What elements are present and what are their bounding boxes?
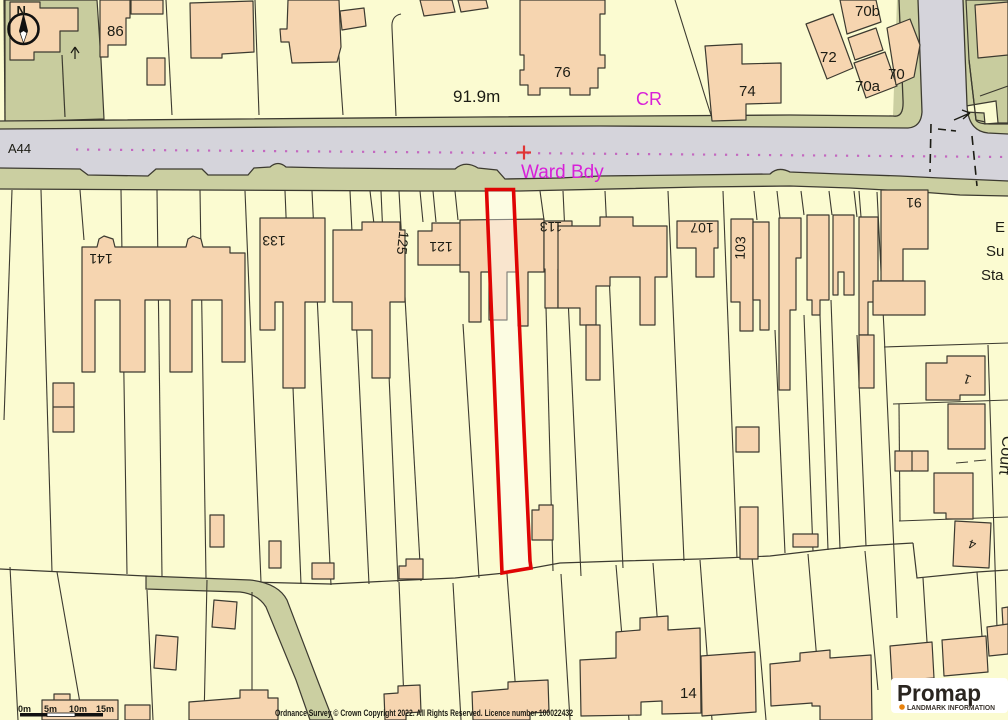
svg-text:E: E	[995, 219, 1005, 236]
svg-text:103: 103	[732, 236, 749, 260]
svg-text:86: 86	[107, 23, 124, 40]
svg-text:0m: 0m	[18, 704, 31, 714]
svg-text:121: 121	[429, 239, 453, 255]
svg-text:91.9m: 91.9m	[453, 87, 500, 106]
svg-text:Ward Bdy: Ward Bdy	[521, 162, 604, 183]
svg-text:Ordnance Survey © Crown Copyri: Ordnance Survey © Crown Copyright 2022. …	[275, 708, 573, 719]
svg-text:125: 125	[394, 231, 412, 256]
svg-text:72: 72	[820, 49, 837, 66]
svg-text:15m: 15m	[96, 704, 114, 714]
svg-text:5m: 5m	[44, 704, 57, 714]
svg-text:76: 76	[554, 64, 571, 81]
svg-text:N: N	[17, 3, 26, 18]
svg-text:141: 141	[89, 251, 113, 267]
svg-text:133: 133	[262, 233, 286, 249]
svg-text:CR: CR	[636, 89, 662, 109]
svg-text:74: 74	[739, 83, 756, 100]
svg-text:113: 113	[540, 219, 563, 235]
svg-text:Promap: Promap	[897, 680, 981, 706]
svg-text:Sta: Sta	[981, 267, 1004, 284]
svg-text:A44: A44	[8, 141, 31, 156]
svg-text:107: 107	[690, 220, 714, 236]
svg-text:91: 91	[906, 195, 922, 211]
svg-text:Su: Su	[986, 243, 1004, 260]
svg-text:10m: 10m	[69, 704, 87, 714]
svg-text:70: 70	[888, 66, 905, 83]
svg-text:14: 14	[680, 685, 697, 702]
svg-text:70a: 70a	[855, 78, 881, 95]
svg-text:70b: 70b	[855, 3, 880, 20]
svg-text:LANDMARK INFORMATION: LANDMARK INFORMATION	[907, 705, 995, 712]
